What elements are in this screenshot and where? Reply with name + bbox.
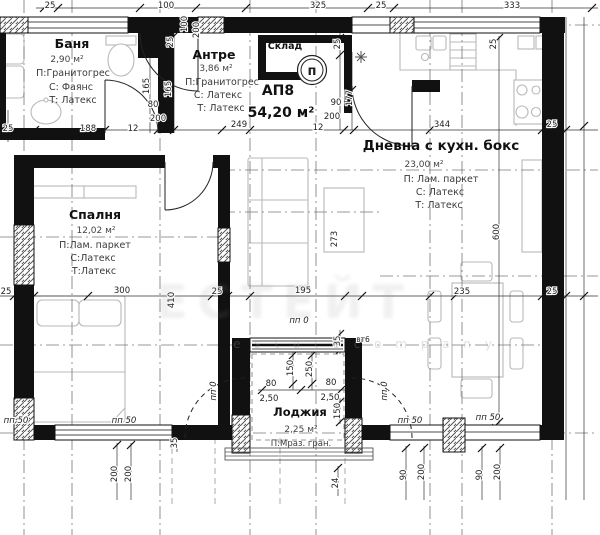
room-area: 12,02 м² (76, 226, 115, 236)
apartment-area: 54,20 м² (248, 105, 315, 121)
dim-label: 90 (399, 470, 409, 481)
dim-label: 177 (345, 90, 355, 106)
dim-label: 600 (492, 224, 502, 240)
dim-label: 25 (489, 39, 499, 50)
wall (540, 425, 564, 440)
room-walls: С: Латекс (194, 90, 242, 101)
window (55, 425, 172, 440)
room-floor: П:Гранитогрес (185, 77, 259, 88)
kitchen-cabinet (450, 34, 476, 70)
dim-label: 80 (326, 378, 337, 388)
watermark-big: ЕСТЕЙТ (156, 275, 414, 329)
dim-label: 24 (331, 478, 341, 489)
dim-label: 25 (3, 124, 14, 134)
chair (461, 262, 492, 281)
pp-label: пп 50 (4, 416, 29, 426)
symbols-layer: п (298, 51, 368, 85)
room-label-bedroom: Спалня 12,02 м² П:Лам. паркет С:Латекс Т… (59, 207, 131, 277)
bedroom-door-arc (165, 162, 213, 210)
boiler-letter: п (308, 64, 317, 79)
wall-hatch (390, 17, 414, 33)
dim-label: 200 (417, 464, 427, 480)
tall-cabinet (522, 160, 542, 252)
pp-label: пп 50 (398, 416, 423, 426)
room-area: 23,00 м² (404, 160, 443, 170)
dim-label: 25 (45, 1, 56, 11)
room-ceiling: Т: Латекс (196, 103, 244, 114)
room-label-sklad: Склад (268, 41, 303, 52)
dim-label: 12 (313, 123, 324, 133)
dining-table (452, 283, 503, 377)
dim-label: 344 (434, 120, 450, 130)
pillow (37, 300, 79, 326)
watermark: ЕСТЕЙТ e s t a t e c o m p a n y (156, 275, 497, 351)
room-name: Антре (193, 47, 236, 62)
room-area: 2,25 м² (284, 425, 318, 435)
wall-hatch (443, 418, 465, 452)
dim-label: 150 (286, 360, 296, 376)
snowflake-icon (355, 51, 367, 63)
room-ceiling: Т: Латекс (48, 95, 96, 106)
window (390, 425, 443, 440)
dim-label: 235 (454, 287, 470, 297)
wall-hatch (218, 228, 230, 262)
toilet-bowl (108, 44, 134, 76)
dim-label: 188 (80, 124, 96, 134)
burner (532, 86, 540, 94)
dim-label: 250 (305, 361, 315, 377)
wall (14, 285, 34, 398)
dim-label: 150 (333, 403, 343, 419)
wall (14, 155, 165, 168)
dim-label: 200 (192, 22, 202, 38)
dim-label: 25 (166, 37, 176, 48)
dim-label: 325 (310, 1, 326, 11)
pp-label: пп 50 (112, 416, 137, 426)
room-area: 3,86 м² (199, 64, 233, 74)
wall (412, 80, 440, 92)
room-name: Лоджия (273, 405, 327, 419)
burner (517, 85, 527, 95)
pp-label: пп 0 (380, 381, 390, 400)
dim-label: 200 (493, 464, 503, 480)
dim-label: 200 (110, 466, 120, 482)
dim-label: 100 (180, 16, 190, 32)
wall (172, 425, 232, 440)
kitchen-sink-right (433, 36, 446, 50)
dim-label: 90 (475, 470, 485, 481)
room-label-antre: Антре 3,86 м² П:Гранитогрес С: Латекс Т:… (185, 47, 259, 114)
wall (128, 17, 352, 33)
room-walls: С: Латекс (416, 187, 464, 198)
dim-label: 200 (150, 114, 166, 124)
dim-label: 300 (114, 286, 130, 296)
pp-label: пп 50 (476, 413, 501, 423)
dim-label: 249 (231, 120, 247, 130)
wall (0, 33, 6, 130)
dim-label: 333 (504, 1, 520, 11)
dim-label: 165 (164, 81, 174, 97)
dim-label: 2,50 (321, 393, 340, 403)
window (28, 17, 128, 33)
room-name: Дневна с кухн. бокс (363, 138, 520, 154)
dim-label: 25 (1, 287, 12, 297)
dim-label: 25 (376, 1, 387, 11)
living-door-arc (352, 86, 412, 146)
room-floor: П:Лам. паркет (59, 240, 131, 251)
wall-hatch (232, 415, 250, 453)
window (414, 17, 540, 33)
dim-label: 80 (148, 100, 159, 110)
apartment-code: АП8 (262, 83, 294, 99)
pp-label: пп 0 (209, 381, 219, 400)
room-name: Спалня (69, 207, 121, 222)
room-floor: П:Мраз. гран. (271, 439, 331, 449)
room-floor: П: Лам. паркет (404, 174, 479, 185)
wall (542, 17, 564, 429)
dim-label: 25 (333, 39, 343, 50)
wall-hatch (14, 225, 34, 285)
wall (232, 352, 250, 424)
sofa (248, 158, 308, 286)
window (465, 425, 540, 440)
dim-label: 165 (142, 78, 152, 94)
dim-label: 25 (547, 287, 558, 297)
room-walls: С: Фаянс (49, 82, 93, 93)
wall (345, 352, 362, 427)
room-label-loggia: Лоджия 2,25 м² П:Мраз. гран. (271, 405, 331, 449)
kitchen-sink-left (416, 36, 431, 50)
dim-label: 80 (266, 379, 277, 389)
room-ceiling: Т:Латекс (71, 266, 116, 277)
room-ceiling: Т: Латекс (414, 200, 462, 211)
chair (510, 338, 523, 369)
dim-label: 25 (547, 120, 558, 130)
wall-hatch (0, 17, 28, 33)
chair (461, 379, 492, 398)
dim-label: 90 (331, 98, 342, 108)
room-name: Баня (55, 36, 90, 51)
floor-plan-drawing: п Баня 2,90 м² П:Гранитогрес С: Фаянс Т:… (0, 0, 600, 535)
appliance (518, 36, 534, 49)
room-name: Склад (268, 41, 303, 52)
dim-label: 2,50 (260, 394, 279, 404)
burner (516, 106, 528, 118)
room-area: 2,90 м² (50, 55, 84, 65)
floor-plan: п Баня 2,90 м² П:Гранитогрес С: Фаянс Т:… (0, 0, 600, 535)
kitchen-tap (422, 54, 429, 61)
watermark-small: e s t a t e c o m p a n y (233, 337, 497, 351)
dim-label: 100 (158, 1, 174, 11)
dim-label: 273 (330, 231, 340, 247)
room-walls: С:Латекс (70, 253, 115, 264)
dim-label: 200 (324, 112, 340, 122)
dim-label: 35 (170, 438, 180, 449)
pillow (79, 300, 121, 326)
wall (362, 425, 390, 440)
room-label-living: Дневна с кухн. бокс 23,00 м² П: Лам. пар… (363, 138, 520, 211)
burner (532, 108, 541, 117)
room-floor: П:Гранитогрес (36, 68, 110, 79)
dim-label: 12 (128, 124, 139, 134)
basin-tap (44, 98, 48, 102)
room-label-banya: Баня 2,90 м² П:Гранитогрес С: Фаянс Т: Л… (36, 36, 110, 106)
dim-label: 200 (124, 466, 134, 482)
apartment-label: АП8 54,20 м² (248, 83, 315, 121)
